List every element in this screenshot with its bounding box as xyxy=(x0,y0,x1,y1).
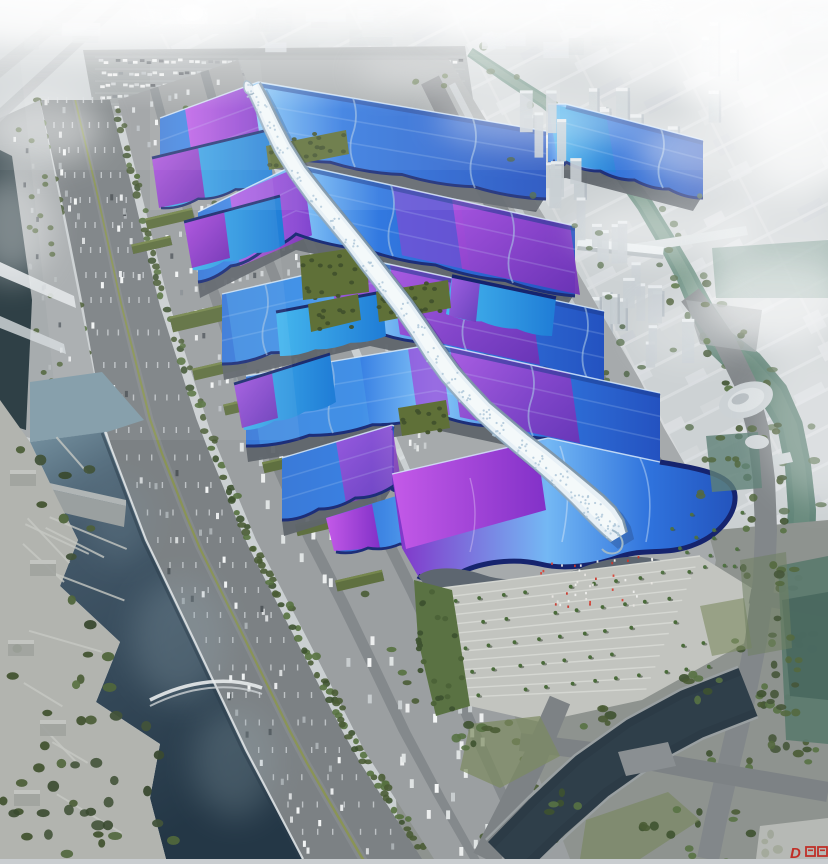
svg-text:D: D xyxy=(790,845,801,859)
